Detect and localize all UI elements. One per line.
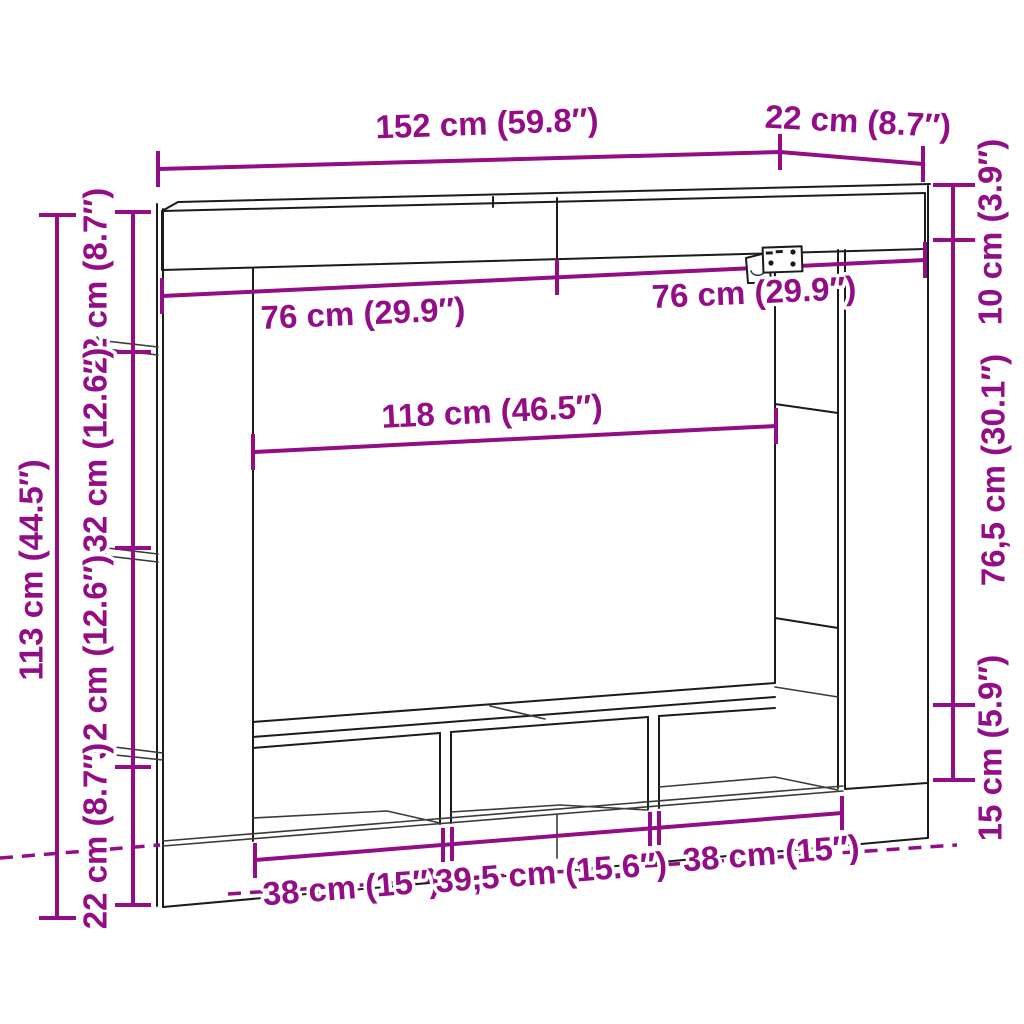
- dimension-diagram-page: 152 cm (59.8″) 22 cm (8.7″) 10 cm (3.9″)…: [0, 0, 1024, 1024]
- label-cubby-middle-width: 39,5 cm (15.6″): [434, 844, 668, 899]
- label-cubby-right-width: 38 cm (15″): [681, 828, 861, 879]
- label-left-segment-top: 22 cm (8.7″): [77, 188, 114, 374]
- label-depth: 22 cm (8.7″): [764, 98, 952, 145]
- right-shelf-lower: [775, 618, 838, 628]
- label-left-segment-bottom: 22 cm (8.7″): [77, 743, 114, 929]
- label-cubby-left-width: 38 cm (15″): [261, 862, 441, 913]
- right-column-bottom-edge: [845, 783, 927, 789]
- label-overall-width: 152 cm (59.8″): [375, 101, 599, 146]
- label-left-segment-upper-mid: 32 cm (12.6″): [77, 348, 114, 553]
- label-top-compartment-right: 76 cm (29.9″): [651, 269, 857, 315]
- tv-wall-unit-diagram: 152 cm (59.8″) 22 cm (8.7″) 10 cm (3.9″)…: [0, 0, 1024, 1024]
- cubby-divider-right: [648, 716, 659, 809]
- right-shelf-upper: [775, 404, 838, 413]
- cubby-top-edges: [253, 708, 775, 748]
- right-column-bench-edge: [775, 687, 838, 697]
- label-left-segment-lower-mid: 32 cm (12.6″): [77, 555, 114, 760]
- label-top-compartment-left: 76 cm (29.9″): [260, 290, 466, 336]
- right-column-front-edge: [838, 250, 845, 788]
- label-middle-opening-height: 76,5 cm (30.1″): [975, 354, 1012, 586]
- dim-line-top: [158, 152, 923, 169]
- top-face-back-edge: [162, 184, 930, 211]
- label-overall-height: 113 cm (44.5″): [13, 459, 50, 680]
- label-opening-width: 118 cm (46.5″): [381, 387, 604, 435]
- cubby-divider-left: [440, 732, 451, 824]
- dim-line-opening: [253, 426, 776, 452]
- top-cabinet-band: [162, 193, 925, 270]
- label-top-cabinet-height: 10 cm (3.9″): [972, 139, 1009, 325]
- label-bench-height: 15 cm (5.9″): [972, 655, 1009, 841]
